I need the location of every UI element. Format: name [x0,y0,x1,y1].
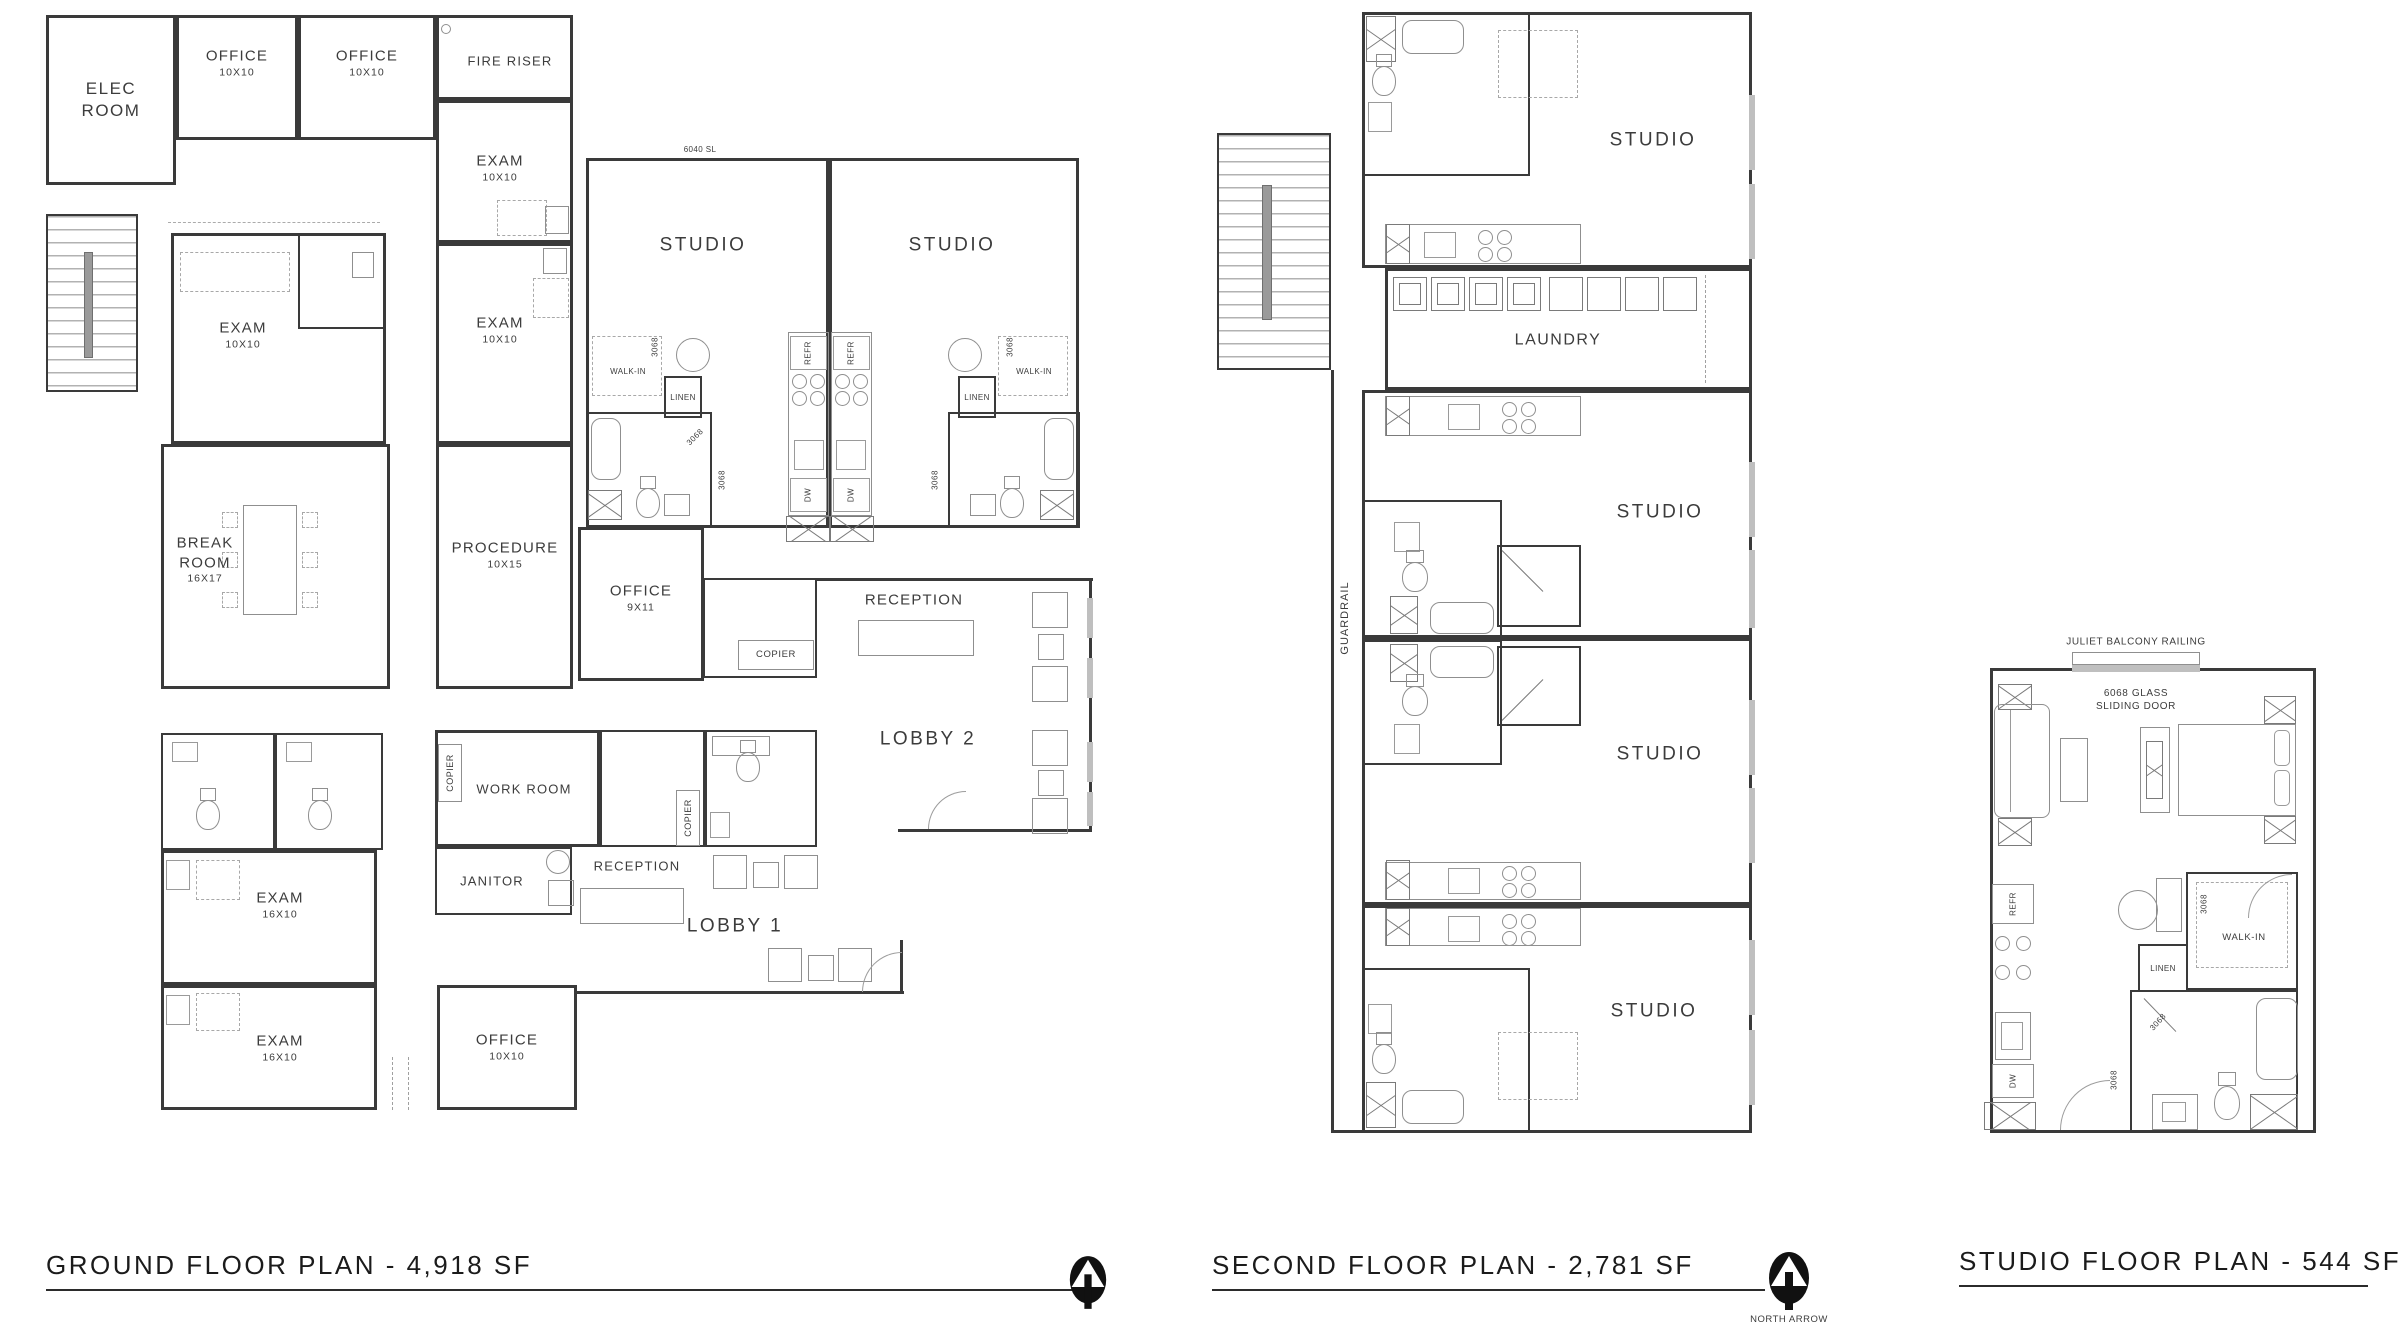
cooktop [1995,936,2031,980]
sink [352,252,374,278]
unit-studio-g2-text: STUDIO [909,234,996,259]
north-arrow-icon [1068,1254,1108,1311]
sliding-door-label: 6068 GLASSSLIDING DOOR [2096,687,2176,713]
shaft [1386,396,1410,436]
sink [1368,1004,1392,1034]
reception-desk [858,620,974,656]
room-exam-b-text: EXAM [219,318,266,338]
side-table [1038,634,1064,660]
cooktop [1502,914,1536,946]
unit-studio-2a-label: STUDIO [1610,129,1697,154]
dw-label: DW [2009,1074,2018,1088]
side-table [808,955,834,981]
second-plan-title: SECOND FLOOR PLAN - 2,781 SF [1212,1250,1694,1281]
copier-text: COPIER [756,649,796,661]
window [1749,184,1755,259]
room-exam-b-size: 10X10 [225,338,260,352]
door-tag: 3068 [2200,894,2209,914]
lobby-chair [768,948,802,982]
walkin-text: WALK-IN [610,367,646,377]
exam-b-closet [298,233,386,329]
sink-basin [2162,1102,2186,1122]
shaft [1040,490,1074,520]
lobby2-label: LOBBY 2 [880,728,976,753]
lobby-chair [713,855,747,889]
sofa [1994,704,2050,818]
toilet [636,488,660,518]
juliet-railing-label: JULIET BALCONY RAILING [2066,636,2206,649]
copier-label: COPIER [756,649,796,661]
room-office-1-label: OFFICE10X10 [206,46,268,79]
washer [1507,277,1541,311]
room-office-2-label: OFFICE10X10 [336,46,398,79]
sliding-glass-door [2072,665,2200,672]
unit-studio-g2-label: STUDIO [909,234,996,259]
side-table [753,862,779,888]
room-exam-c-size: 10X10 [482,333,517,347]
entry-dashed-line [408,1057,409,1110]
bathtub [1430,602,1494,634]
exam-table [196,993,240,1031]
kitchen-counter [1385,862,1581,900]
sliding-door-text-2: SLIDING DOOR [2096,700,2176,713]
unit-studio-2c-text: STUDIO [1617,743,1704,768]
entry-dashed-line [392,1057,393,1110]
room-exam-a-text: EXAM [476,151,523,171]
door-tag: 3068 [718,470,727,490]
lobby-chair [1032,592,1068,628]
mop-sink [548,880,574,906]
sink [166,860,190,890]
walkin-label: WALK-IN [610,367,646,377]
speaker [1998,818,2032,846]
room-office-4-text: OFFICE [476,1030,538,1050]
desk-chair [2118,890,2158,930]
room-exam-16-1-size: 16X10 [262,908,297,922]
soffit-dashed-line [168,222,380,223]
sink [664,494,690,516]
window-tag-text: 6040 SL [684,145,717,155]
walkin-label: WALK-IN [1016,367,1052,377]
bathtub [1044,418,1074,480]
room-exam-a-size: 10X10 [482,171,517,185]
room-work-label: WORK ROOM [476,782,571,799]
juliet-railing-text: JULIET BALCONY RAILING [2066,636,2206,649]
speaker [2264,696,2296,724]
toilet [196,800,220,830]
ground-plan-title: GROUND FLOOR PLAN - 4,918 SF [46,1250,532,1281]
sink [545,206,569,234]
laundry-dashed-line [1705,275,1706,383]
linen-label: LINEN [964,393,990,403]
room-office-2-text: OFFICE [336,46,398,66]
walkin-label: WALK-IN [2222,932,2265,944]
wall [816,578,1093,581]
title-rule [1959,1285,2368,1287]
stair-rail [1262,185,1272,320]
dw-label: DW [804,488,813,502]
pillow [2274,730,2290,766]
cooktop [1502,402,1536,434]
lobby-chair [784,855,818,889]
coffee-table [2060,738,2088,802]
sink [543,248,567,274]
unit-studio-2d-text: STUDIO [1611,1000,1698,1025]
bathtub [591,418,621,480]
sliding-door-text-1: 6068 GLASS [2104,687,2168,700]
door-tag: 3068 [2110,1070,2119,1090]
cooktop [1478,230,1512,262]
shaft [588,490,622,520]
room-procedure-label: PROCEDURE10X15 [452,538,559,571]
washer [1469,277,1503,311]
sofa-cushion-line [2010,710,2011,812]
title-rule [46,1289,1072,1291]
room-janitor-label: JANITOR [460,874,524,891]
room-office-3-label: OFFICE9X11 [610,581,672,614]
room-office-4-size: 10X10 [489,1050,524,1064]
linen-text: LINEN [964,393,990,403]
window [1087,792,1093,826]
toilet [308,800,332,830]
sink [710,812,730,838]
unit-studio-2a-text: STUDIO [1610,129,1697,154]
kitchen-sink [836,440,866,470]
unit-studio-2d-label: STUDIO [1611,1000,1698,1025]
room-exam-a-label: EXAM10X10 [476,151,523,184]
linen-text: LINEN [2150,964,2176,974]
room-break-label: BREAK ROOM16X17 [170,534,240,587]
room-exam-b-label: EXAM10X10 [219,318,266,351]
kitchen-sink [1448,868,1480,894]
toilet [2214,1086,2240,1120]
unit-studio-2c-label: STUDIO [1617,743,1704,768]
sink [286,742,312,762]
room-office-1-text: OFFICE [206,46,268,66]
toilet [1402,562,1428,592]
bathtub [1402,20,1464,54]
room-laundry-label: LAUNDRY [1515,331,1602,352]
window [1087,598,1093,638]
room-exam-16-1-label: EXAM16X10 [256,888,303,921]
refr-label: REFR [847,341,856,365]
exam-table [196,860,240,900]
desk-chair [676,338,710,372]
toilet [1402,686,1428,716]
break-table [243,505,297,615]
linen-text: LINEN [670,393,696,403]
kitchen-counter [1385,908,1581,946]
exam-table [533,278,569,318]
room-procedure-size: 10X15 [487,558,522,572]
toilet [736,752,760,782]
chair [302,552,318,568]
guardrail-label: GUARDRAIL [1339,581,1351,654]
room-office-3-size: 9X11 [627,601,655,615]
sink-basin [2001,1022,2023,1050]
chair [302,512,318,528]
north-arrow-icon [1766,1250,1812,1312]
refr-label: REFR [2009,892,2018,916]
chair [222,512,238,528]
window [1749,788,1755,863]
reception-desk [580,888,684,924]
door-tag: 3068 [931,470,940,490]
shaft [786,516,830,542]
dw-label: DW [847,488,856,502]
door-arc [928,791,966,829]
stairwell [1217,133,1331,370]
sink [1394,522,1420,552]
wall [574,991,904,994]
unit-studio-2b-text: STUDIO [1617,501,1704,526]
reception-bottom-text: RECEPTION [594,859,681,876]
room-elec-text: ELEC ROOM [76,78,146,122]
linen-label: LINEN [2150,964,2176,974]
unit-studio-g1-text: STUDIO [660,234,747,259]
reception-top-text: RECEPTION [865,590,963,610]
window [1749,550,1755,628]
bathtub [2256,998,2298,1080]
speaker [2264,816,2296,844]
title-rule [1212,1289,1765,1291]
bathtub [1430,646,1494,678]
room-fire-riser-label: FIRE RISER [468,54,553,71]
room-procedure-text: PROCEDURE [452,538,559,558]
window [1749,462,1755,537]
shaft [2250,1094,2298,1130]
chair [302,592,318,608]
sink [172,742,198,762]
room-office-2-size: 10X10 [349,66,384,80]
toilet [1000,488,1024,518]
room-elec-label: ELEC ROOM [76,78,146,122]
toilet [1372,1044,1396,1074]
shaft [1390,596,1418,634]
tv [2146,741,2163,799]
dryer [1625,277,1659,311]
stair-rail [84,252,93,358]
kitchen-counter [1385,396,1581,436]
walkin-text: WALK-IN [1016,367,1052,377]
chair [222,592,238,608]
walkin-closet-dashed [1498,1032,1578,1100]
room-exam-16-2-label: EXAM16X10 [256,1031,303,1064]
dryer [1663,277,1697,311]
refr-label: REFR [804,341,813,365]
pillow [2274,770,2290,806]
toilet [1372,66,1396,96]
walkin-closet [1497,646,1581,726]
fire-riser-symbol [441,24,451,34]
desk [2156,878,2182,932]
sink [1394,724,1420,754]
room-exam-16-2-size: 16X10 [262,1051,297,1065]
kitchen-sink [794,440,824,470]
washer [1431,277,1465,311]
room-exam-16-2-text: EXAM [256,1031,303,1051]
lobby-chair [1032,666,1068,702]
bathtub [1402,1090,1464,1124]
lobby2-text: LOBBY 2 [880,728,976,753]
desk-chair [948,338,982,372]
door-tag: 3068 [1006,337,1015,357]
north-arrow-caption: NORTH ARROW [1750,1314,1828,1326]
room-break-text: BREAK ROOM [170,534,240,573]
lobby1-label: LOBBY 1 [687,915,783,940]
unit-studio-2b-label: STUDIO [1617,501,1704,526]
walkin-closet-dashed [1498,30,1578,98]
dryer [1549,277,1583,311]
cooktop [835,374,868,406]
juliet-railing [2072,652,2200,665]
sink [166,995,190,1025]
shaft [1386,224,1410,264]
window [1749,1030,1755,1105]
room-work-text: WORK ROOM [476,782,571,799]
cooktop [792,374,825,406]
room-office-3-text: OFFICE [610,581,672,601]
reception-top-label: RECEPTION [865,590,963,610]
shaft [830,516,874,542]
walkin-text: WALK-IN [2222,932,2265,944]
room-office-4-label: OFFICE10X10 [476,1030,538,1063]
cooktop [1502,866,1536,898]
window [1749,95,1755,170]
shaft [1366,1082,1396,1128]
shaft [1386,908,1410,946]
unit-studio-g1-label: STUDIO [660,234,747,259]
kitchen-sink [1424,232,1456,258]
door-tag: 3068 [651,337,660,357]
dryer [1587,277,1621,311]
lobby-chair [1032,798,1068,834]
north-arrow-caption-text: NORTH ARROW [1750,1314,1828,1326]
water-heater [546,850,570,874]
kitchen-sink [1448,404,1480,430]
room-fire-riser-text: FIRE RISER [468,54,553,71]
window-tag: 6040 SL [684,145,717,155]
copier-label: COPIER [683,799,693,837]
copier-label: COPIER [445,754,455,792]
studio-plan-title: STUDIO FLOOR PLAN - 544 SF [1959,1246,2400,1277]
room-exam-c-label: EXAM10X10 [476,313,523,346]
room-janitor-text: JANITOR [460,874,524,891]
room-exam-16-1-text: EXAM [256,888,303,908]
window [1749,940,1755,1015]
reception-bottom-label: RECEPTION [594,859,681,876]
window [1087,658,1093,698]
side-table [1038,770,1064,796]
room-office-1-size: 10X10 [219,66,254,80]
guardrail-line [1331,370,1334,1133]
linen-label: LINEN [670,393,696,403]
room-exam-c-text: EXAM [476,313,523,333]
sink [970,494,996,516]
casework [180,252,290,292]
window [1749,700,1755,775]
exam-table [497,200,547,236]
kitchen-sink [1448,916,1480,942]
shaft [1386,860,1410,900]
wall [1331,1130,1752,1133]
washer [1393,277,1427,311]
sink [1368,102,1392,132]
lobby1-text: LOBBY 1 [687,915,783,940]
floor-plan-sheet: { "sheet": { "background": "#ffffff", "w… [0,0,2400,1331]
room-laundry-text: LAUNDRY [1515,331,1602,352]
window [1087,742,1093,782]
room-break-size: 16X17 [187,573,222,587]
shaft [1984,1102,2036,1130]
lobby-chair [1032,730,1068,766]
